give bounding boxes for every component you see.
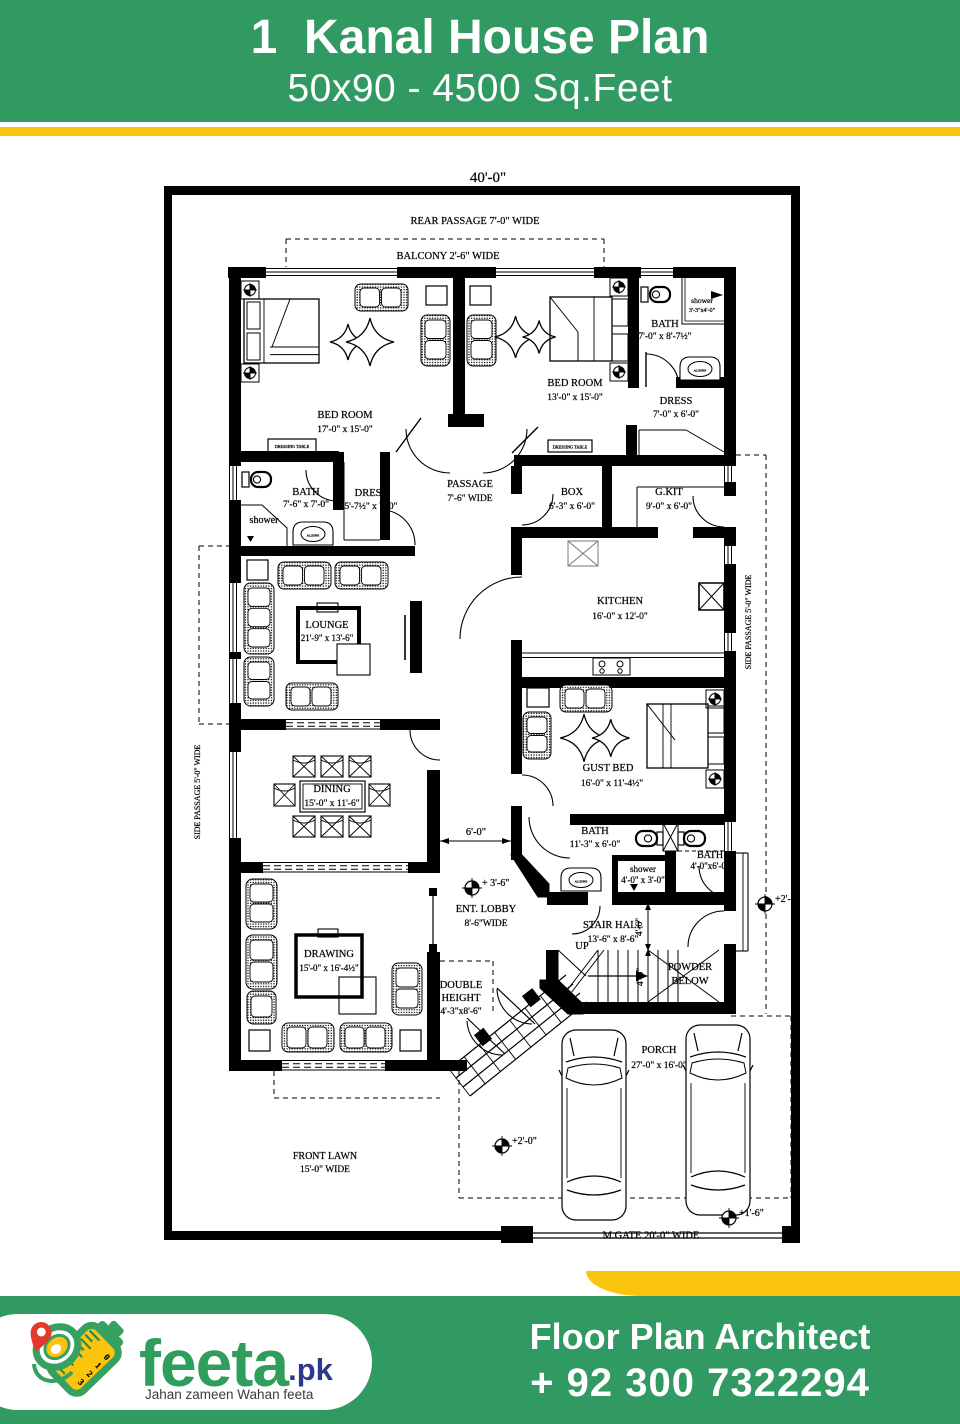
svg-text:+2'-6": +2'-6" xyxy=(775,894,800,905)
svg-text:15'-0" WIDE: 15'-0" WIDE xyxy=(300,1165,350,1175)
svg-text:7'-6" WIDE: 7'-6" WIDE xyxy=(447,494,492,504)
svg-text:REAR PASSAGE 7'-0" WIDE: REAR PASSAGE 7'-0" WIDE xyxy=(411,216,540,227)
svg-text:13'-6" x 8'-6": 13'-6" x 8'-6" xyxy=(588,935,639,945)
svg-text:+ 3'-6": + 3'-6" xyxy=(482,878,509,889)
svg-text:15'-0" x 11'-6": 15'-0" x 11'-6" xyxy=(304,799,359,809)
svg-text:shower: shower xyxy=(250,515,280,526)
svg-text:4'-0"x6'-0": 4'-0"x6'-0" xyxy=(690,861,729,871)
svg-text:21'-9" x 13'-6": 21'-9" x 13'-6" xyxy=(301,633,354,643)
svg-text:+1'-6": +1'-6" xyxy=(739,1208,764,1219)
svg-text:13'-0" x 15'-0": 13'-0" x 15'-0" xyxy=(547,393,603,403)
svg-text:shower: shower xyxy=(691,296,713,305)
svg-text:40'-0": 40'-0" xyxy=(470,170,506,186)
svg-text:G.KIT: G.KIT xyxy=(655,487,683,498)
svg-text:DRESSING TABLE: DRESSING TABLE xyxy=(275,444,310,449)
svg-text:SIDE PASSAGE 5'-0" WIDE: SIDE PASSAGE 5'-0" WIDE xyxy=(193,745,202,840)
svg-text:7'-0" x 8'-7½": 7'-0" x 8'-7½" xyxy=(638,331,691,342)
svg-text:BATH: BATH xyxy=(292,487,320,498)
svg-text:ALBINS: ALBINS xyxy=(307,534,320,538)
svg-text:BATH: BATH xyxy=(581,826,609,837)
svg-text:PORCH: PORCH xyxy=(641,1045,676,1056)
svg-text:BOX: BOX xyxy=(561,487,584,498)
svg-text:7'-6" x 7'-0": 7'-6" x 7'-0" xyxy=(283,500,329,510)
svg-text:KITCHEN: KITCHEN xyxy=(597,596,643,607)
svg-text:17'-0" x 15'-0": 17'-0" x 15'-0" xyxy=(317,425,373,435)
svg-text:11'-3" x 6'-0": 11'-3" x 6'-0" xyxy=(570,840,621,850)
svg-text:16'-0" x 12'-0": 16'-0" x 12'-0" xyxy=(592,612,648,622)
svg-text:27'-0" x 16'-0": 27'-0" x 16'-0" xyxy=(631,1061,687,1071)
svg-text:6'-3" x 6'-0": 6'-3" x 6'-0" xyxy=(549,502,595,512)
svg-text:GUST BED: GUST BED xyxy=(583,763,634,774)
svg-text:5'-7½" x 7'-0": 5'-7½" x 7'-0" xyxy=(344,501,397,512)
svg-text:FRONT LAWN: FRONT LAWN xyxy=(293,1151,357,1162)
svg-text:BED ROOM: BED ROOM xyxy=(317,410,373,421)
svg-text:BELOW: BELOW xyxy=(671,976,708,987)
svg-text:4'-3"x8'-6": 4'-3"x8'-6" xyxy=(440,1007,481,1017)
svg-text:7'-0" x 6'-0": 7'-0" x 6'-0" xyxy=(653,410,699,420)
svg-text:UP: UP xyxy=(575,941,589,952)
svg-text:4'-0" x 3'-0": 4'-0" x 3'-0" xyxy=(621,875,665,885)
svg-text:4'-6": 4'-6" xyxy=(635,918,645,936)
svg-text:SIDE PASSAGE 5'-0" WIDE: SIDE PASSAGE 5'-0" WIDE xyxy=(744,575,753,670)
svg-text:DOUBLE: DOUBLE xyxy=(440,980,483,991)
svg-text:3'-3"x4'-0": 3'-3"x4'-0" xyxy=(689,308,716,314)
svg-text:BATH: BATH xyxy=(651,319,679,330)
svg-text:DINING: DINING xyxy=(313,784,351,795)
svg-text:16'-0" x 11'-4½": 16'-0" x 11'-4½" xyxy=(581,778,643,789)
svg-text:DRAWING: DRAWING xyxy=(304,949,354,960)
svg-text:DRESS: DRESS xyxy=(660,396,693,407)
svg-text:BALCONY 2'-6" WIDE: BALCONY 2'-6" WIDE xyxy=(396,251,499,262)
svg-text:HEIGHT: HEIGHT xyxy=(441,993,481,1004)
svg-text:ENT. LOBBY: ENT. LOBBY xyxy=(456,904,517,915)
svg-text:4'-0": 4'-0" xyxy=(636,968,646,986)
svg-text:POWDER: POWDER xyxy=(668,962,712,973)
svg-text:DRESSING TABLE: DRESSING TABLE xyxy=(553,445,588,450)
svg-text:9'-0" x 6'-0": 9'-0" x 6'-0" xyxy=(646,502,692,512)
svg-text:BATH: BATH xyxy=(697,850,723,861)
svg-text:BED ROOM: BED ROOM xyxy=(547,378,603,389)
svg-text:ALBINS: ALBINS xyxy=(694,369,707,373)
svg-text:+2'-0": +2'-0" xyxy=(512,1136,537,1147)
svg-text:15'-0" x 16'-4½": 15'-0" x 16'-4½" xyxy=(299,963,359,973)
svg-text:M.GATE 20'-0" WIDE: M.GATE 20'-0" WIDE xyxy=(603,1231,700,1242)
svg-text:6'-0": 6'-0" xyxy=(466,827,486,838)
svg-text:DRESS: DRESS xyxy=(355,488,388,499)
svg-text:LOUNGE: LOUNGE xyxy=(305,620,348,631)
svg-text:shower: shower xyxy=(630,864,656,874)
svg-text:8'-6"WIDE: 8'-6"WIDE xyxy=(464,919,507,929)
svg-text:PASSAGE: PASSAGE xyxy=(447,479,493,490)
svg-text:ALBINS: ALBINS xyxy=(575,880,588,884)
